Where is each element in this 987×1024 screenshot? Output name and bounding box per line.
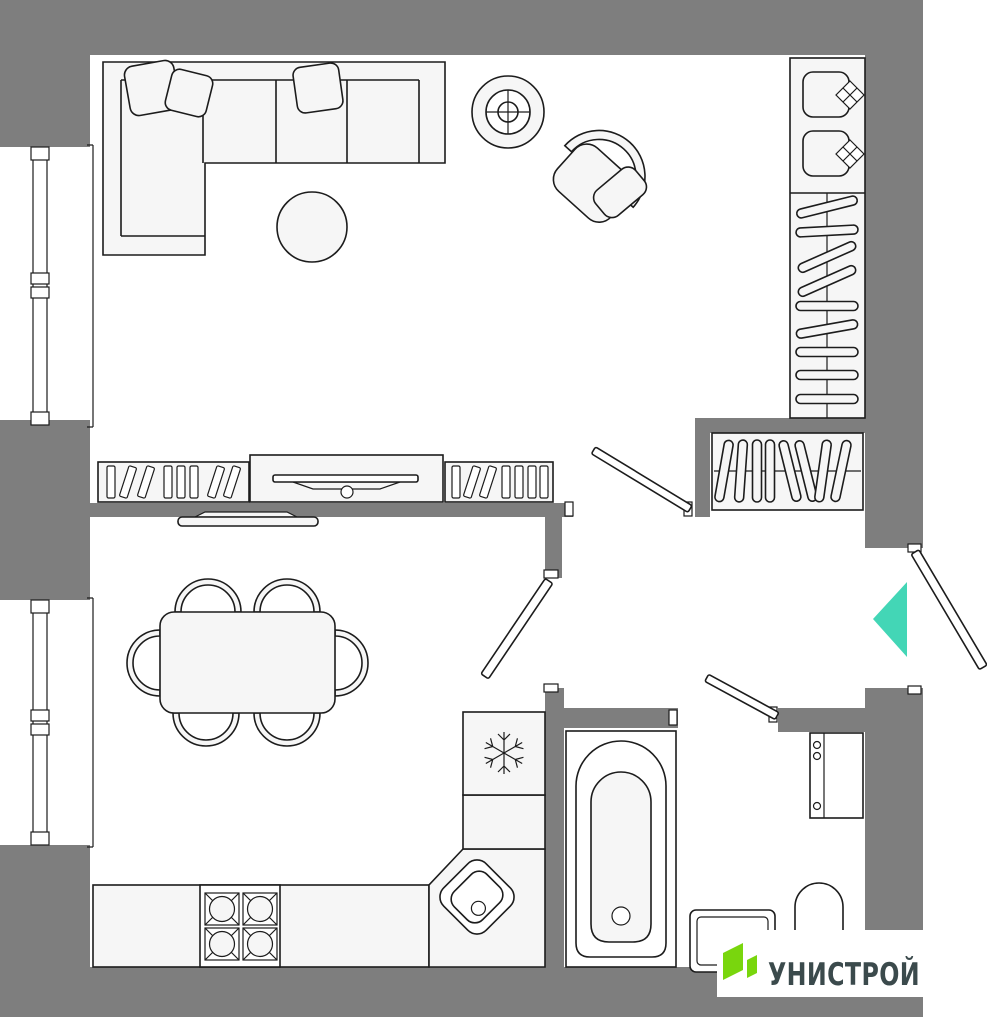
ceiling-light-icon (472, 76, 544, 148)
living-room-door-leaf (591, 447, 692, 513)
armchair (539, 111, 664, 235)
kitchen-counters (93, 712, 545, 967)
hallway-closet (712, 433, 863, 510)
window-sill-line (87, 145, 93, 427)
floor-plan-canvas: УНИСТРОЙ (0, 0, 987, 1024)
chair (127, 630, 160, 696)
sofa-pillow (292, 62, 344, 114)
washing-machine (810, 733, 863, 818)
bathroom-door-leaf (705, 674, 779, 719)
dining-table (160, 612, 335, 713)
door-jamb (544, 570, 558, 578)
sofa-pillow (164, 68, 215, 119)
chair (254, 713, 320, 746)
kitchen-door-leaf (481, 578, 553, 678)
drain (612, 907, 630, 925)
corner-sofa (103, 59, 445, 255)
developer-logo: УНИСТРОЙ (717, 930, 923, 997)
door-jamb (565, 502, 573, 516)
media-console (98, 455, 553, 502)
logo-text: УНИСТРОЙ (768, 957, 920, 993)
round-pouf (277, 192, 347, 262)
door-jamb (544, 684, 558, 692)
door-jamb (669, 710, 677, 725)
window-sill-line (87, 598, 93, 847)
chair (173, 713, 239, 746)
chair (254, 579, 320, 612)
bathtub (566, 731, 676, 967)
entrance-door-leaf (911, 550, 987, 670)
window-living-room (31, 145, 93, 427)
window-kitchen (31, 598, 93, 847)
wardrobe (790, 58, 865, 418)
door-jamb (908, 686, 921, 694)
chair (175, 579, 241, 612)
entrance-arrow-icon (873, 582, 907, 657)
dining-set (127, 579, 368, 746)
floor-plan: УНИСТРОЙ (0, 0, 987, 1024)
chair (335, 630, 368, 696)
